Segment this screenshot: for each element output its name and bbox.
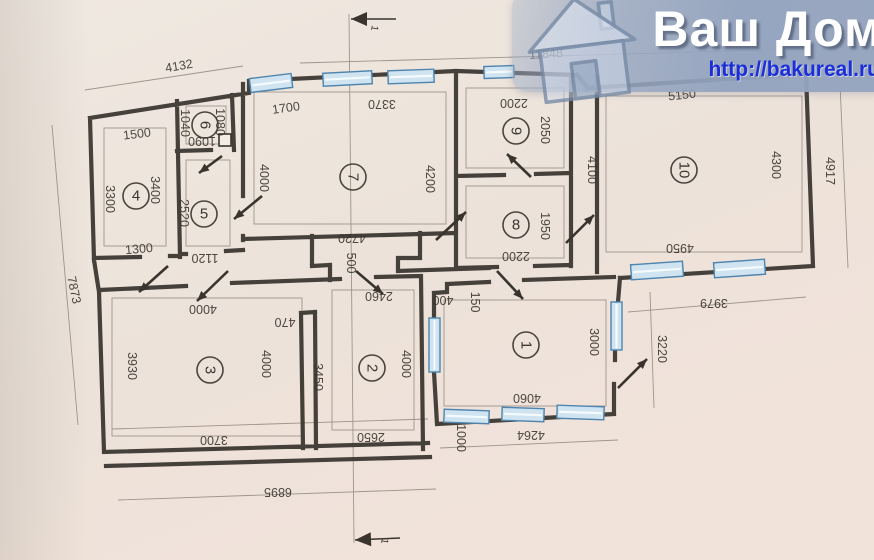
window-icon — [611, 302, 622, 350]
dimension-400: 400 — [433, 293, 454, 307]
dimension-4060: 4060 — [513, 391, 541, 405]
dimension-4000: 4000 — [257, 164, 271, 192]
dimension-1120: 1120 — [192, 251, 219, 265]
site-title: Ваш Дом — [502, 0, 874, 58]
dimension-3300: 3300 — [103, 185, 117, 213]
room-number-text: 6 — [197, 121, 214, 129]
window-icon — [557, 405, 604, 420]
dimension-500: 500 — [344, 253, 358, 274]
window-icon — [631, 261, 684, 280]
window-icon — [444, 409, 489, 424]
dimension-3700: 3700 — [200, 433, 228, 447]
dimension-4200: 4200 — [423, 165, 437, 193]
dimension-2460: 2460 — [365, 289, 393, 303]
room-number-text: 1 — [518, 341, 535, 349]
dimension-2050: 2050 — [538, 116, 552, 144]
watermark-banner: Ваш Дом http://bakureal.ru — [512, 0, 874, 92]
dimension-3000: 3000 — [587, 328, 601, 356]
dimension-1080: 1080 — [213, 108, 227, 136]
dimension-3370: 3370 — [368, 97, 396, 111]
dimension-4300: 4300 — [769, 151, 783, 179]
dimension-3450: 3450 — [311, 363, 325, 391]
dimension-1950: 1950 — [538, 212, 552, 240]
window-icon — [502, 407, 544, 421]
dimension-470: 470 — [275, 315, 296, 329]
dimension-1000: 1000 — [454, 424, 468, 452]
dimension-4917: 4917 — [823, 157, 837, 185]
dimension-6895: 6895 — [264, 485, 292, 499]
dimension-4000: 4000 — [399, 350, 413, 378]
dimension-3930: 3930 — [125, 352, 139, 380]
window-icon — [388, 69, 434, 84]
dimension-4000: 4000 — [259, 350, 273, 378]
room-number-text: 8 — [512, 217, 520, 234]
dimension-4264: 4264 — [517, 428, 545, 442]
dimension-2200: 2200 — [500, 96, 528, 110]
dimension-4100: 4100 — [585, 156, 599, 184]
site-url: http://bakureal.ru — [500, 58, 874, 82]
dimension-2520: 2520 — [177, 199, 191, 227]
room-number-text: 3 — [202, 366, 219, 374]
dimension-150: 150 — [468, 292, 482, 313]
window-icon — [429, 318, 440, 372]
window-icon — [714, 259, 766, 278]
dimension-1040: 1040 — [178, 109, 192, 137]
room-number-text: 2 — [364, 364, 381, 372]
dimension-4000: 4000 — [189, 302, 217, 316]
dimension-4950: 4950 — [666, 241, 694, 255]
dimension-3220: 3220 — [655, 335, 669, 363]
room-number-text: 5 — [200, 206, 208, 223]
room-number-text: 9 — [508, 127, 525, 135]
dimension-3400: 3400 — [148, 176, 162, 204]
window-icon — [323, 71, 373, 87]
room-number-text: 4 — [132, 188, 140, 205]
dimension-3979: 3979 — [700, 296, 728, 310]
room-number-text: 7 — [345, 173, 362, 181]
dimension-1300: 1300 — [125, 241, 154, 257]
room-number-text: 10 — [676, 162, 693, 179]
dimension-2650: 2650 — [357, 430, 385, 444]
scanned-floorplan-photo: 4132118485150150017003370220010401080109… — [0, 0, 874, 560]
dimension-2200: 2200 — [502, 249, 530, 263]
dimension-4720: 4720 — [338, 231, 366, 245]
